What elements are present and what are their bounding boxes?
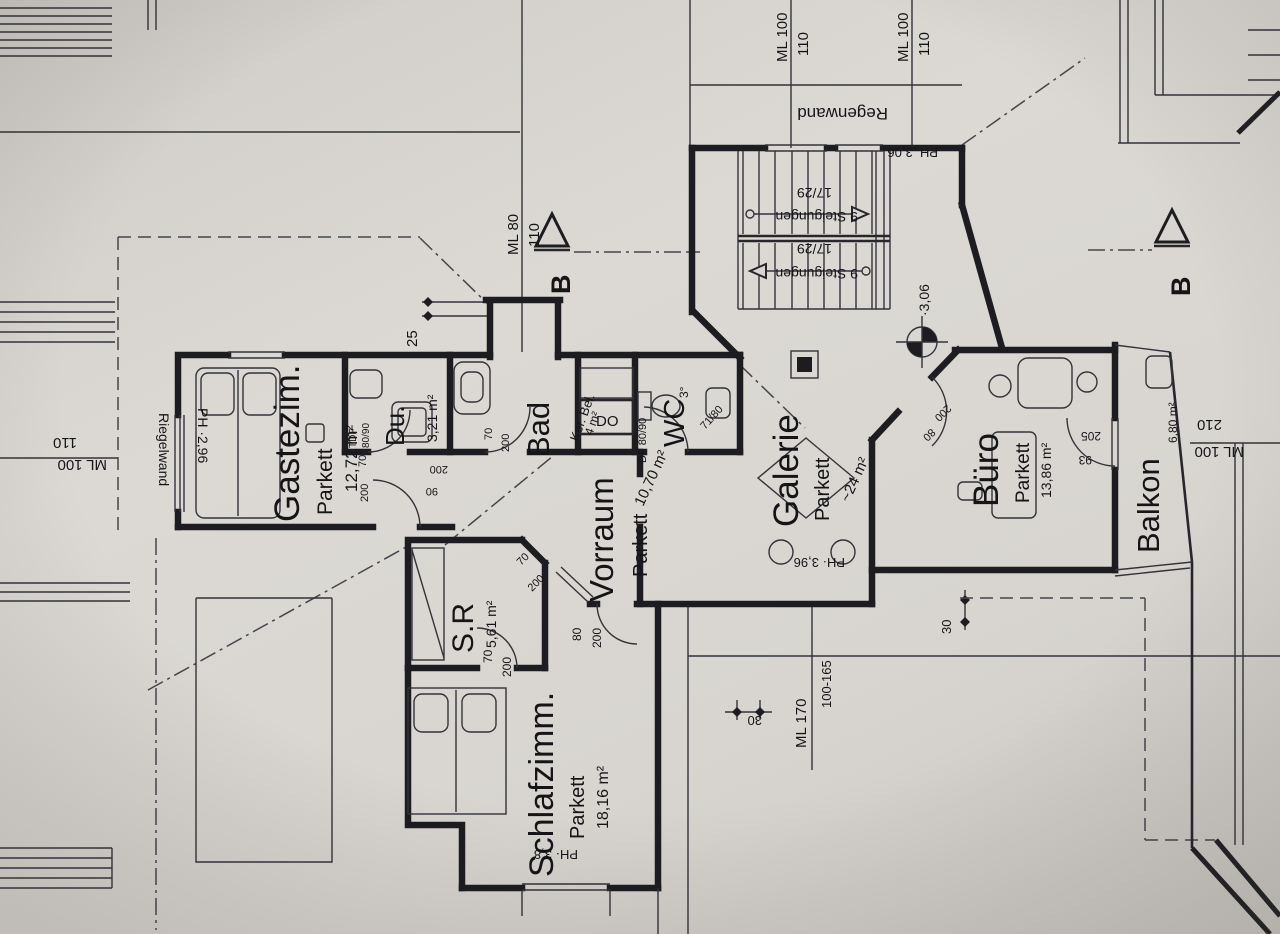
photo-vignette <box>0 0 1280 934</box>
floor-plan-canvas: Gastezim. Parkett 12,72 m² Du. 3,21 m² T… <box>0 0 1280 934</box>
floor-plan-photo: Gastezim. Parkett 12,72 m² Du. 3,21 m² T… <box>0 0 1280 934</box>
